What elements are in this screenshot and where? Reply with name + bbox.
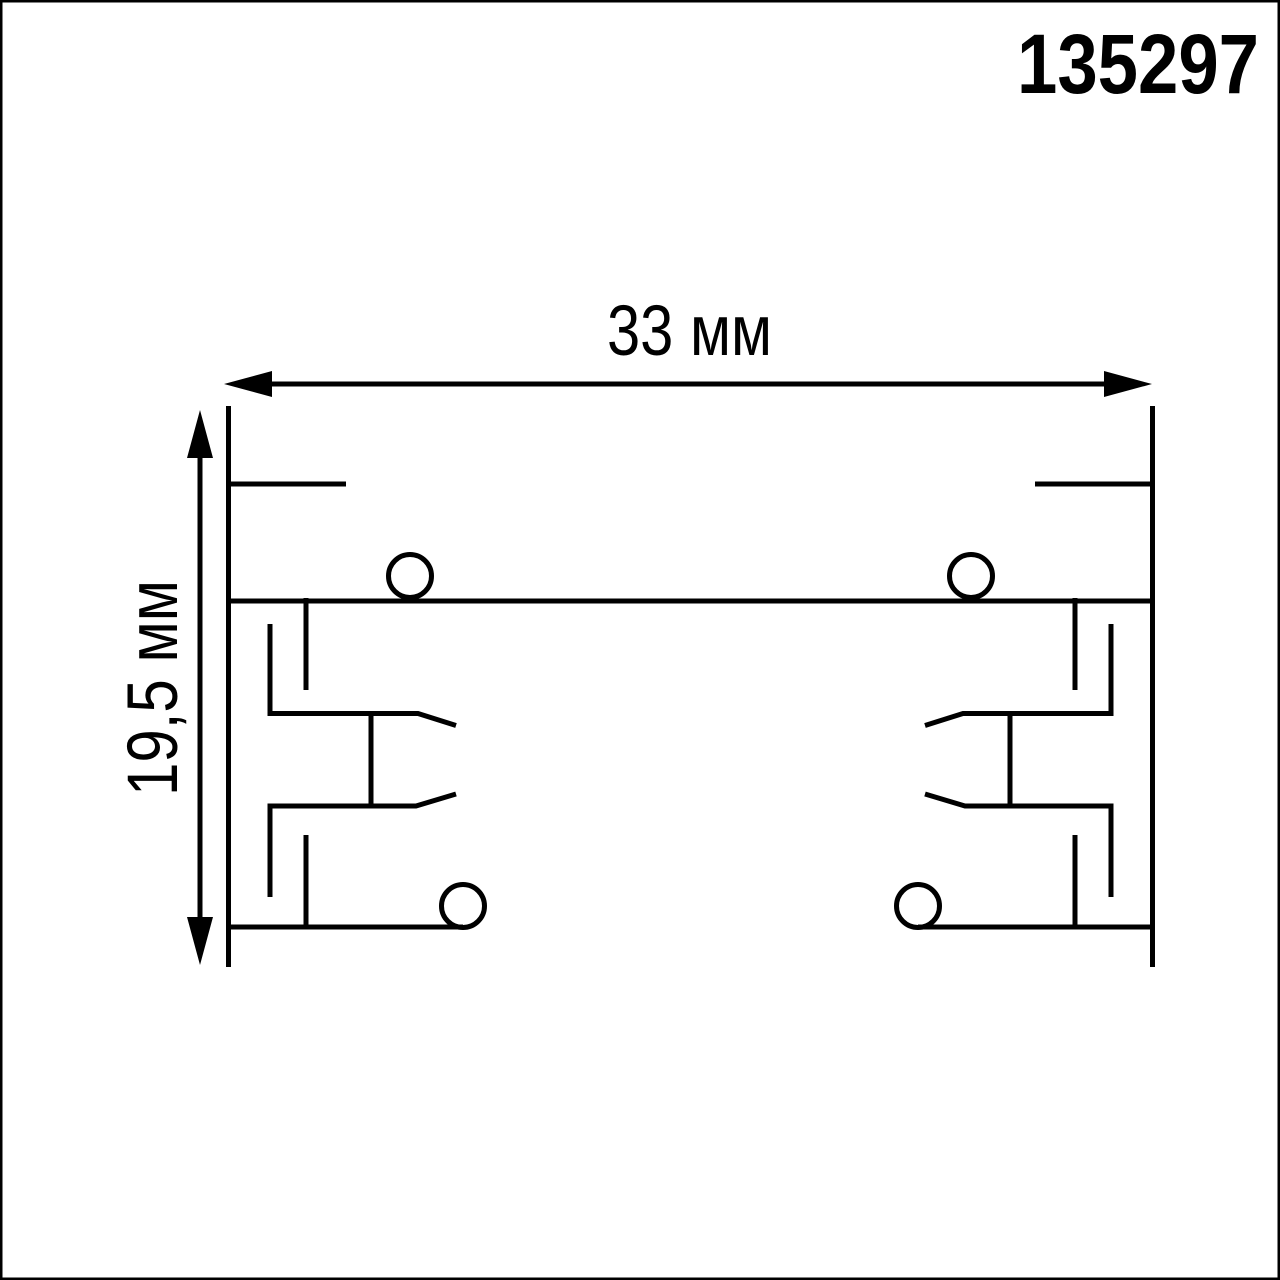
svg-text:135297: 135297 (1017, 17, 1259, 111)
svg-text:33 мм: 33 мм (607, 292, 772, 371)
svg-text:19,5 мм: 19,5 мм (114, 580, 193, 796)
